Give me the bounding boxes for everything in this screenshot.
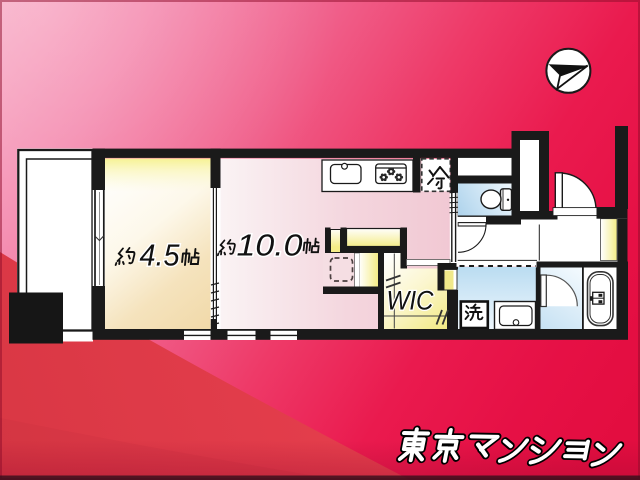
svg-text:4.5: 4.5 bbox=[140, 238, 181, 273]
svg-text:10.0: 10.0 bbox=[237, 228, 303, 263]
svg-text:WIC: WIC bbox=[387, 286, 435, 316]
